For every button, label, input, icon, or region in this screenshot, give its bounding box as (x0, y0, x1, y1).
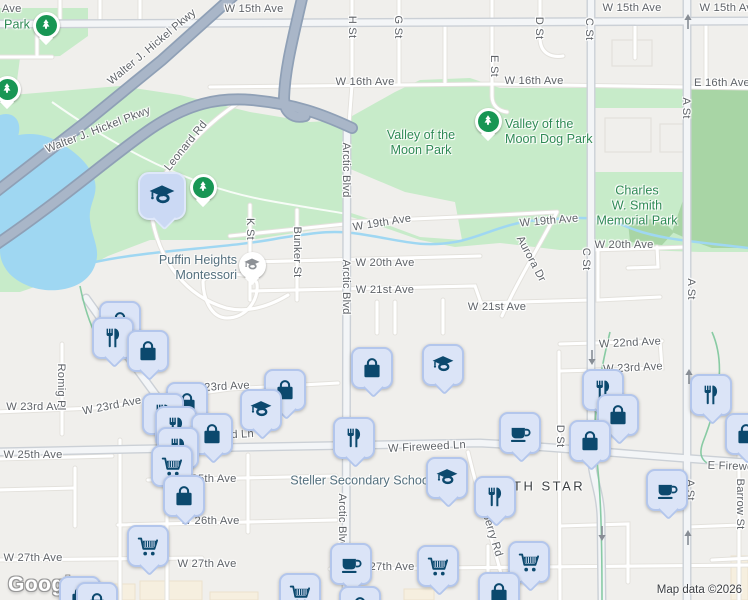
marker-shopping-bag[interactable] (339, 586, 381, 600)
park-label[interactable]: Park (4, 18, 30, 33)
shopping-cart-icon (287, 581, 313, 600)
marker-cafe[interactable] (646, 469, 688, 511)
charles-w-smith-memorial-park-label[interactable]: CharlesW. SmithMemorial Park (596, 184, 677, 229)
restaurant-icon (698, 382, 724, 408)
marker-park-tree[interactable] (0, 76, 21, 103)
road-label: A St (685, 278, 697, 299)
marker-shopping-bag[interactable] (478, 572, 520, 600)
shopping-bag-icon (577, 428, 603, 454)
road-label: D St (554, 425, 566, 448)
road-label: H St (346, 16, 358, 39)
marker-school[interactable] (426, 457, 468, 499)
graduation-cap-icon (147, 181, 178, 212)
shopping-bag-icon (733, 421, 748, 447)
marker-supermarket[interactable] (279, 573, 321, 600)
marker-school[interactable] (138, 172, 186, 220)
road-label: W 25th Ave (3, 449, 62, 461)
marker-cafe[interactable] (499, 412, 541, 454)
road-label: W 16th Ave (335, 76, 394, 88)
road-label: G St (392, 15, 404, 38)
road-label: W 15th Ave (0, 3, 22, 15)
map-canvas[interactable]: W 15th AveW 15th AveW 15th AveW 15th Ave… (0, 0, 748, 600)
road-label: W 15th Ave (699, 2, 748, 14)
shopping-bag-icon (84, 590, 110, 600)
restaurant-icon (482, 484, 508, 510)
road-label: Romig Pl (55, 364, 67, 411)
shopping-cart-icon (425, 553, 451, 579)
road-label: W 15th Ave (224, 3, 283, 15)
graduation-cap-icon (430, 352, 456, 378)
shopping-bag-icon (171, 483, 197, 509)
shopping-cart-icon (135, 533, 161, 559)
road-label: Arctic Blvd (340, 142, 352, 197)
road-label: Barrow St (734, 479, 746, 530)
road-label: W 16th Ave (504, 75, 563, 87)
puffin-heights-montessori-label[interactable]: Puffin HeightsMontessori (159, 253, 237, 283)
road-label: K St (244, 218, 256, 240)
marker-restaurant[interactable] (333, 417, 375, 459)
shopping-bag-icon (359, 355, 385, 381)
road-label: E 16th Ave (694, 77, 748, 89)
restaurant-icon (341, 425, 367, 451)
road-label: W 15th Ave (602, 2, 661, 14)
road-label: W 21st Ave (356, 284, 414, 296)
marker-park-tree[interactable] (475, 108, 502, 135)
marker-park-tree[interactable] (190, 174, 217, 201)
marker-shopping-bag[interactable] (163, 475, 205, 517)
map-attribution: Map data ©2026 (657, 584, 742, 596)
marker-shopping-bag[interactable] (725, 413, 748, 455)
graduation-cap-icon (243, 256, 262, 275)
road-label: W 27th Ave (177, 558, 236, 570)
coffee-cup-icon (507, 420, 533, 446)
road-label: W 27th Ave (3, 552, 62, 564)
road-label: W 20th Ave (594, 239, 653, 251)
marker-cafe[interactable] (330, 543, 372, 585)
tree-icon (0, 82, 15, 97)
marker-shopping-bag[interactable] (127, 330, 169, 372)
road-label: Arctic Blvd (340, 259, 352, 314)
map-base-layer (0, 0, 748, 600)
graduation-cap-icon (434, 465, 460, 491)
shopping-bag-icon (486, 580, 512, 600)
tree-icon (481, 114, 496, 129)
marker-shopping-bag[interactable] (76, 582, 118, 600)
shopping-bag-icon (199, 421, 225, 447)
road-label: D St (533, 17, 545, 40)
restaurant-icon (100, 325, 126, 351)
marker-shopping-bag[interactable] (569, 420, 611, 462)
road-label: C St (580, 248, 592, 271)
marker-park-tree[interactable] (33, 12, 60, 39)
road-label: Bunker St (291, 227, 303, 278)
coffee-cup-icon (338, 551, 364, 577)
marker-restaurant[interactable] (474, 476, 516, 518)
road-label: C St (583, 18, 595, 41)
road-label: A St (680, 97, 692, 118)
road-label: E St (488, 55, 500, 77)
steller-secondary-school-label[interactable]: Steller Secondary School (290, 474, 431, 489)
road-label: W 20th Ave (355, 257, 414, 269)
valley-of-the-moon-dog-park-label[interactable]: Valley of theMoon Dog Park (505, 117, 593, 147)
shopping-bag-icon (135, 338, 161, 364)
graduation-cap-icon (248, 397, 274, 423)
valley-of-the-moon-park-label[interactable]: Valley of theMoon Park (387, 128, 455, 158)
marker-restaurant[interactable] (690, 374, 732, 416)
marker-shopping-bag[interactable] (351, 347, 393, 389)
shopping-bag-icon (347, 594, 373, 600)
tree-icon (196, 180, 211, 195)
marker-supermarket[interactable] (127, 525, 169, 567)
marker-school[interactable] (240, 389, 282, 431)
marker-school[interactable] (239, 252, 266, 279)
road-label: W 21st Ave (468, 301, 526, 313)
tree-icon (39, 18, 54, 33)
road-label: Arctic Blvd (336, 493, 348, 548)
shopping-cart-icon (516, 549, 542, 575)
marker-school[interactable] (422, 344, 464, 386)
marker-supermarket[interactable] (417, 545, 459, 587)
coffee-cup-icon (654, 477, 680, 503)
